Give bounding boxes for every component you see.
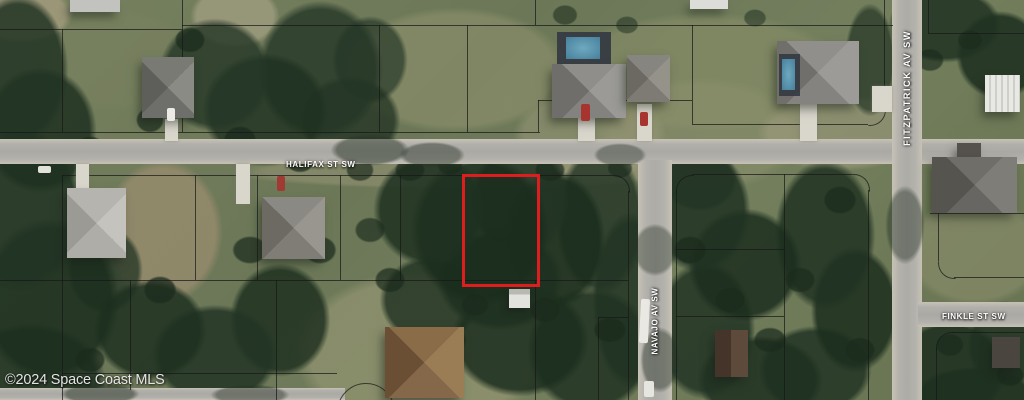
street-label-finkle: FINKLE ST SW [942, 312, 1006, 321]
parcel-line [276, 280, 277, 400]
parcel-line [400, 175, 401, 280]
parcel-line [692, 25, 693, 124]
pool-enclosure [779, 54, 800, 96]
driveway [236, 164, 250, 204]
aerial-map: HALIFAX ST SW FITZPATRICK AV SW NAVAJO A… [0, 0, 1024, 400]
driveway [165, 119, 178, 141]
parcel-line [0, 29, 182, 30]
driveway [872, 86, 892, 112]
driveway [578, 118, 595, 141]
pool [782, 59, 795, 90]
parcel-line [784, 174, 785, 400]
shed-roof [509, 289, 530, 308]
house-roof [690, 0, 728, 9]
road-bottom [0, 388, 345, 400]
vehicle-red-car [277, 176, 285, 191]
parcel-line [257, 175, 258, 280]
parcel-line [628, 191, 629, 400]
street-label-halifax: HALIFAX ST SW [286, 160, 356, 169]
shed-roof [985, 75, 1020, 112]
parcel-line [195, 175, 196, 280]
parcel-line [340, 175, 341, 280]
parcel-line [598, 317, 628, 318]
parcel-line [467, 25, 468, 132]
road-navajo [638, 160, 672, 400]
vehicle-white-car [38, 166, 51, 173]
street-label-navajo: NAVAJO AV SW [651, 288, 660, 355]
house-roof [627, 55, 670, 102]
subject-parcel-outline [462, 174, 540, 287]
parcel-line [182, 25, 893, 26]
parcel-line [0, 132, 540, 133]
driveway [800, 104, 817, 141]
parcel-line [936, 348, 937, 400]
vehicle-white-car [644, 381, 654, 397]
vehicle-red-car [640, 112, 648, 126]
parcel-line [538, 100, 539, 132]
parcel-line [62, 175, 63, 400]
house-roof [385, 327, 464, 398]
parcel-line [535, 0, 536, 25]
house-roof [67, 188, 126, 258]
parcel-line [535, 280, 536, 400]
house-roof [932, 157, 1017, 213]
parcel-line [379, 25, 380, 132]
parcel-line [598, 317, 599, 400]
vehicle-red-car [581, 104, 590, 121]
house-roof [262, 197, 325, 259]
parcel-line [952, 332, 1024, 333]
shed-roof [715, 330, 748, 377]
parcel-line [954, 277, 1024, 278]
house-roof [70, 0, 120, 12]
parcel-line [62, 29, 63, 132]
parcel-line [930, 213, 1024, 214]
pool [566, 37, 600, 59]
parcel-line [928, 0, 929, 33]
parcel-line [928, 33, 1024, 34]
copyright-watermark: ©2024 Space Coast MLS [5, 372, 165, 388]
shed-roof [992, 337, 1020, 368]
parcel-line [938, 213, 939, 261]
parcel-corner [676, 175, 694, 193]
parcel-line [676, 191, 677, 400]
road-halifax [0, 139, 1024, 164]
parcel-line [676, 249, 784, 250]
parcel-corner [936, 332, 954, 350]
vehicle-white-car [167, 108, 175, 121]
pool-enclosure [557, 32, 611, 65]
driveway [76, 164, 89, 190]
parcel-line [692, 124, 868, 125]
parcel-line [676, 316, 784, 317]
street-label-fitzpatrick: FITZPATRICK AV SW [902, 30, 912, 146]
parcel-line [868, 190, 869, 400]
parcel-line [692, 174, 852, 175]
